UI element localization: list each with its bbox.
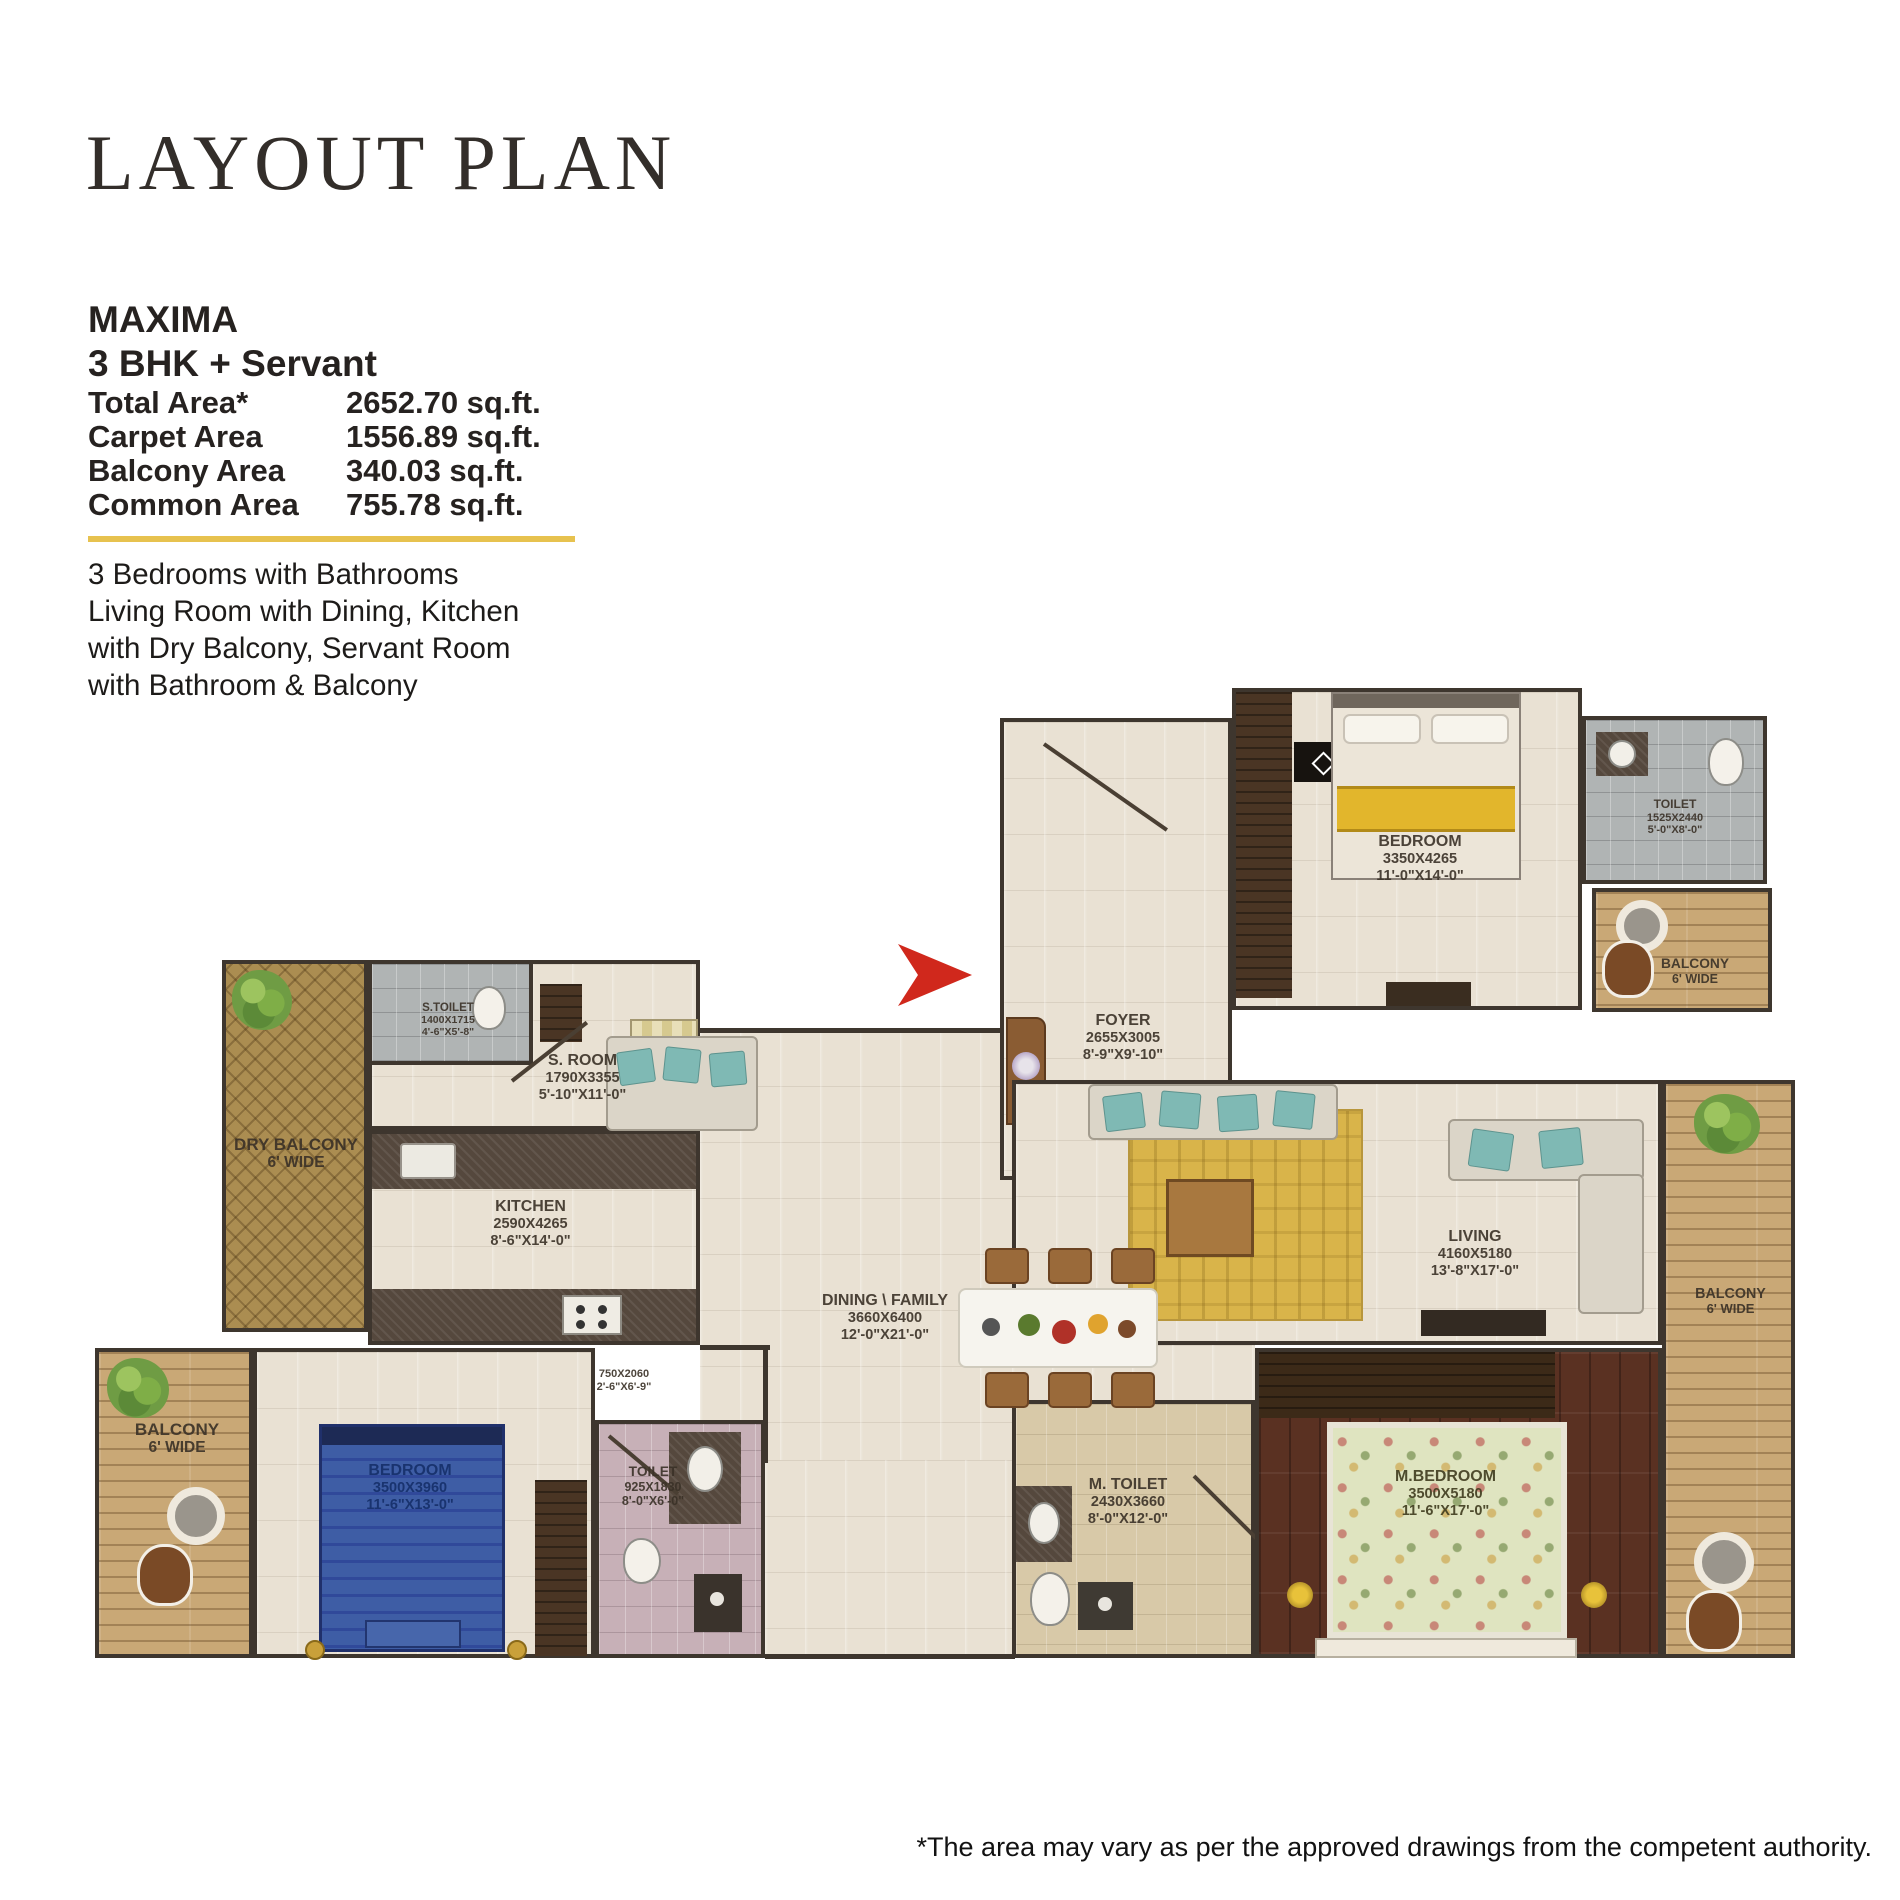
label-living: LIVING 4160X5180 13'-8"X17'-0" [1400, 1228, 1550, 1279]
plant-decor [232, 970, 292, 1030]
lamp [507, 1640, 527, 1660]
cushion [1102, 1092, 1146, 1133]
dining-chair [1111, 1248, 1155, 1284]
headboard [1333, 694, 1519, 708]
room-dims-ft: 12'-0"X21'-0" [800, 1327, 970, 1344]
stove [562, 1295, 622, 1335]
shower [694, 1574, 742, 1632]
wall-segment [698, 1028, 1014, 1033]
burner [576, 1305, 585, 1314]
label-s-room: S. ROOM 1790X3355 5'-10"X11'-0" [515, 1052, 650, 1103]
room-dims-ft: 2'-6"X6'-9" [568, 1381, 680, 1394]
room-size: 6' WIDE [1678, 1302, 1783, 1317]
shower-head [710, 1592, 724, 1606]
dining-chair [1048, 1372, 1092, 1408]
kitchen-counter-bottom [372, 1289, 696, 1341]
cushion [1468, 1128, 1515, 1171]
room-dims-mm: 1790X3355 [515, 1070, 650, 1087]
label-bedroom-top: BEDROOM 3350X4265 11'-0"X14'-0" [1325, 833, 1515, 884]
brochure-page: LAYOUT PLAN MAXIMA 3 BHK + Servant Total… [0, 0, 1900, 1900]
room-name: BALCONY [1645, 956, 1745, 972]
room-dims-mm: 2430X3660 [1063, 1494, 1193, 1511]
room-dims-mm: 3500X3960 [320, 1480, 500, 1497]
label-toilet-bottom: TOILET 925X1830 8'-0"X6'-0" [598, 1464, 708, 1508]
cushion [662, 1046, 701, 1084]
lamp [305, 1640, 325, 1660]
room-name: TOILET [598, 1464, 708, 1480]
room-name: TOILET [1610, 798, 1740, 812]
dining-chair [1048, 1248, 1092, 1284]
label-passage: 750X2060 2'-6"X6'-9" [568, 1368, 680, 1393]
room-dims-mm: 925X1830 [598, 1480, 708, 1494]
lamp [1581, 1582, 1607, 1608]
cushion [1217, 1094, 1259, 1133]
room-name: DINING \ FAMILY [800, 1292, 970, 1310]
room-balcony-top-right [1592, 888, 1772, 1012]
room-dims-mm: 750X2060 [568, 1368, 680, 1381]
room-dims-ft: 8'-0"X12'-0" [1063, 1511, 1193, 1528]
pillow [1431, 714, 1509, 744]
room-dims-ft: 13'-8"X17'-0" [1400, 1263, 1550, 1280]
room-name: BEDROOM [1325, 833, 1515, 851]
tv-console [1421, 1310, 1546, 1336]
label-m-toilet: M. TOILET 2430X3660 8'-0"X12'-0" [1063, 1476, 1193, 1527]
pillow [1343, 714, 1421, 744]
room-dims-mm: 2590X4265 [463, 1216, 598, 1233]
label-balcony-left: BALCONY 6' WIDE [112, 1420, 242, 1457]
lobby-floor [765, 1460, 1012, 1658]
vanity [1596, 732, 1648, 776]
kitchen-sink [400, 1143, 456, 1179]
flower-decor [1012, 1052, 1040, 1080]
room-dims-mm: 2655X3005 [1058, 1030, 1188, 1047]
headboard [322, 1427, 502, 1445]
door-swing [1193, 1475, 1261, 1543]
cushion [1272, 1090, 1316, 1130]
room-name: BALCONY [112, 1420, 242, 1439]
room-name: M. TOILET [1063, 1476, 1193, 1494]
room-dims-ft: 8'-9"X9'-10" [1058, 1047, 1188, 1064]
room-dims-ft: 5'-10"X11'-0" [515, 1087, 650, 1104]
room-balcony-left [95, 1348, 253, 1658]
toilet-seat [1030, 1572, 1070, 1626]
coffee-table [1166, 1179, 1254, 1257]
sofa-l-shaped [1448, 1119, 1644, 1181]
round-table [1694, 1532, 1754, 1592]
door-swing [1043, 742, 1168, 831]
room-name: KITCHEN [463, 1198, 598, 1216]
room-dims-ft: 11'-6"X17'-0" [1358, 1503, 1533, 1520]
wardrobe [1259, 1352, 1555, 1418]
room-toilet-bottom [595, 1420, 765, 1658]
room-dims-mm: 1525X2440 [1610, 812, 1740, 825]
wall-segment [700, 1345, 770, 1350]
room-name: BALCONY [1678, 1286, 1783, 1302]
bed [1327, 1422, 1567, 1638]
food-item [1088, 1314, 1108, 1334]
room-name: BEDROOM [320, 1462, 500, 1480]
label-toilet-top: TOILET 1525X2440 5'-0"X8'-0" [1610, 798, 1740, 837]
disclaimer-text: *The area may vary as per the approved d… [917, 1832, 1872, 1863]
food-item [1018, 1314, 1040, 1336]
food-item [1052, 1320, 1076, 1344]
room-dims-mm: 3500X5180 [1358, 1486, 1533, 1503]
room-name: LIVING [1400, 1228, 1550, 1246]
cushion [709, 1050, 748, 1087]
footboard [1315, 1638, 1577, 1658]
room-name: S. ROOM [515, 1052, 650, 1070]
label-dining: DINING \ FAMILY 3660X6400 12'-0"X21'-0" [800, 1292, 970, 1343]
sofa [1088, 1084, 1338, 1140]
cushion [1538, 1127, 1584, 1169]
room-size: 6' WIDE [1645, 972, 1745, 986]
room-name: FOYER [1058, 1012, 1188, 1030]
sink [1608, 740, 1636, 768]
label-s-toilet: S.TOILET 1400X1715 4'-6"X5'-8" [388, 1002, 508, 1039]
label-balcony-right: BALCONY 6' WIDE [1678, 1286, 1783, 1317]
entry-arrow-icon [898, 944, 972, 1006]
bed [319, 1424, 505, 1652]
room-dims-mm: 3350X4265 [1325, 851, 1515, 868]
kitchen-counter-top [372, 1134, 696, 1189]
toilet-seat [623, 1538, 661, 1584]
label-dry-balcony: DRY BALCONY 6' WIDE [232, 1135, 360, 1172]
cushion [1159, 1090, 1202, 1129]
dining-table [958, 1288, 1158, 1368]
floor-plan: BEDROOM 3350X4265 11'-0"X14'-0" TOILET 1… [0, 0, 1900, 1900]
chair [1686, 1590, 1742, 1652]
dining-chair [985, 1248, 1029, 1284]
label-balcony-top-right: BALCONY 6' WIDE [1645, 956, 1745, 986]
room-dims-mm: 3660X6400 [800, 1310, 970, 1327]
room-dims-ft: 4'-6"X5'-8" [388, 1027, 508, 1039]
room-dims-mm: 4160X5180 [1400, 1246, 1550, 1263]
dresser [1386, 982, 1471, 1006]
room-dims-ft: 11'-6"X13'-0" [320, 1497, 500, 1514]
label-foyer: FOYER 2655X3005 8'-9"X9'-10" [1058, 1012, 1188, 1063]
bed-bench [365, 1620, 461, 1648]
plant-decor [107, 1358, 169, 1418]
shower [1078, 1582, 1133, 1630]
sofa-l-shaped [1578, 1174, 1644, 1314]
wardrobe [535, 1480, 587, 1656]
dining-chair [985, 1372, 1029, 1408]
label-bedroom-bottom: BEDROOM 3500X3960 11'-6"X13'-0" [320, 1462, 500, 1513]
label-kitchen: KITCHEN 2590X4265 8'-6"X14'-0" [463, 1198, 598, 1249]
room-size: 6' WIDE [232, 1154, 360, 1172]
label-m-bedroom: M.BEDROOM 3500X5180 11'-6"X17'-0" [1358, 1468, 1533, 1519]
room-dims-ft: 5'-0"X8'-0" [1610, 824, 1740, 837]
wardrobe [1236, 692, 1292, 998]
lamp [1287, 1582, 1313, 1608]
plant-decor [1694, 1094, 1760, 1154]
room-m-toilet [1012, 1400, 1255, 1658]
food-item [982, 1318, 1000, 1336]
room-dims-ft: 8'-6"X14'-0" [463, 1233, 598, 1250]
food-item [1118, 1320, 1136, 1338]
sink [1028, 1502, 1060, 1544]
blanket [1337, 786, 1515, 832]
room-dims-ft: 11'-0"X14'-0" [1325, 868, 1515, 885]
round-table [167, 1487, 225, 1545]
room-dims-ft: 8'-0"X6'-0" [598, 1494, 708, 1508]
room-name: M.BEDROOM [1358, 1468, 1533, 1486]
toilet-seat [1708, 738, 1744, 786]
room-size: 6' WIDE [112, 1439, 242, 1457]
room-balcony-right [1662, 1080, 1795, 1658]
dining-chair [1111, 1372, 1155, 1408]
wall-segment [765, 1654, 1015, 1659]
shower-head [1098, 1597, 1112, 1611]
room-name: DRY BALCONY [232, 1135, 360, 1154]
chair [137, 1544, 193, 1606]
